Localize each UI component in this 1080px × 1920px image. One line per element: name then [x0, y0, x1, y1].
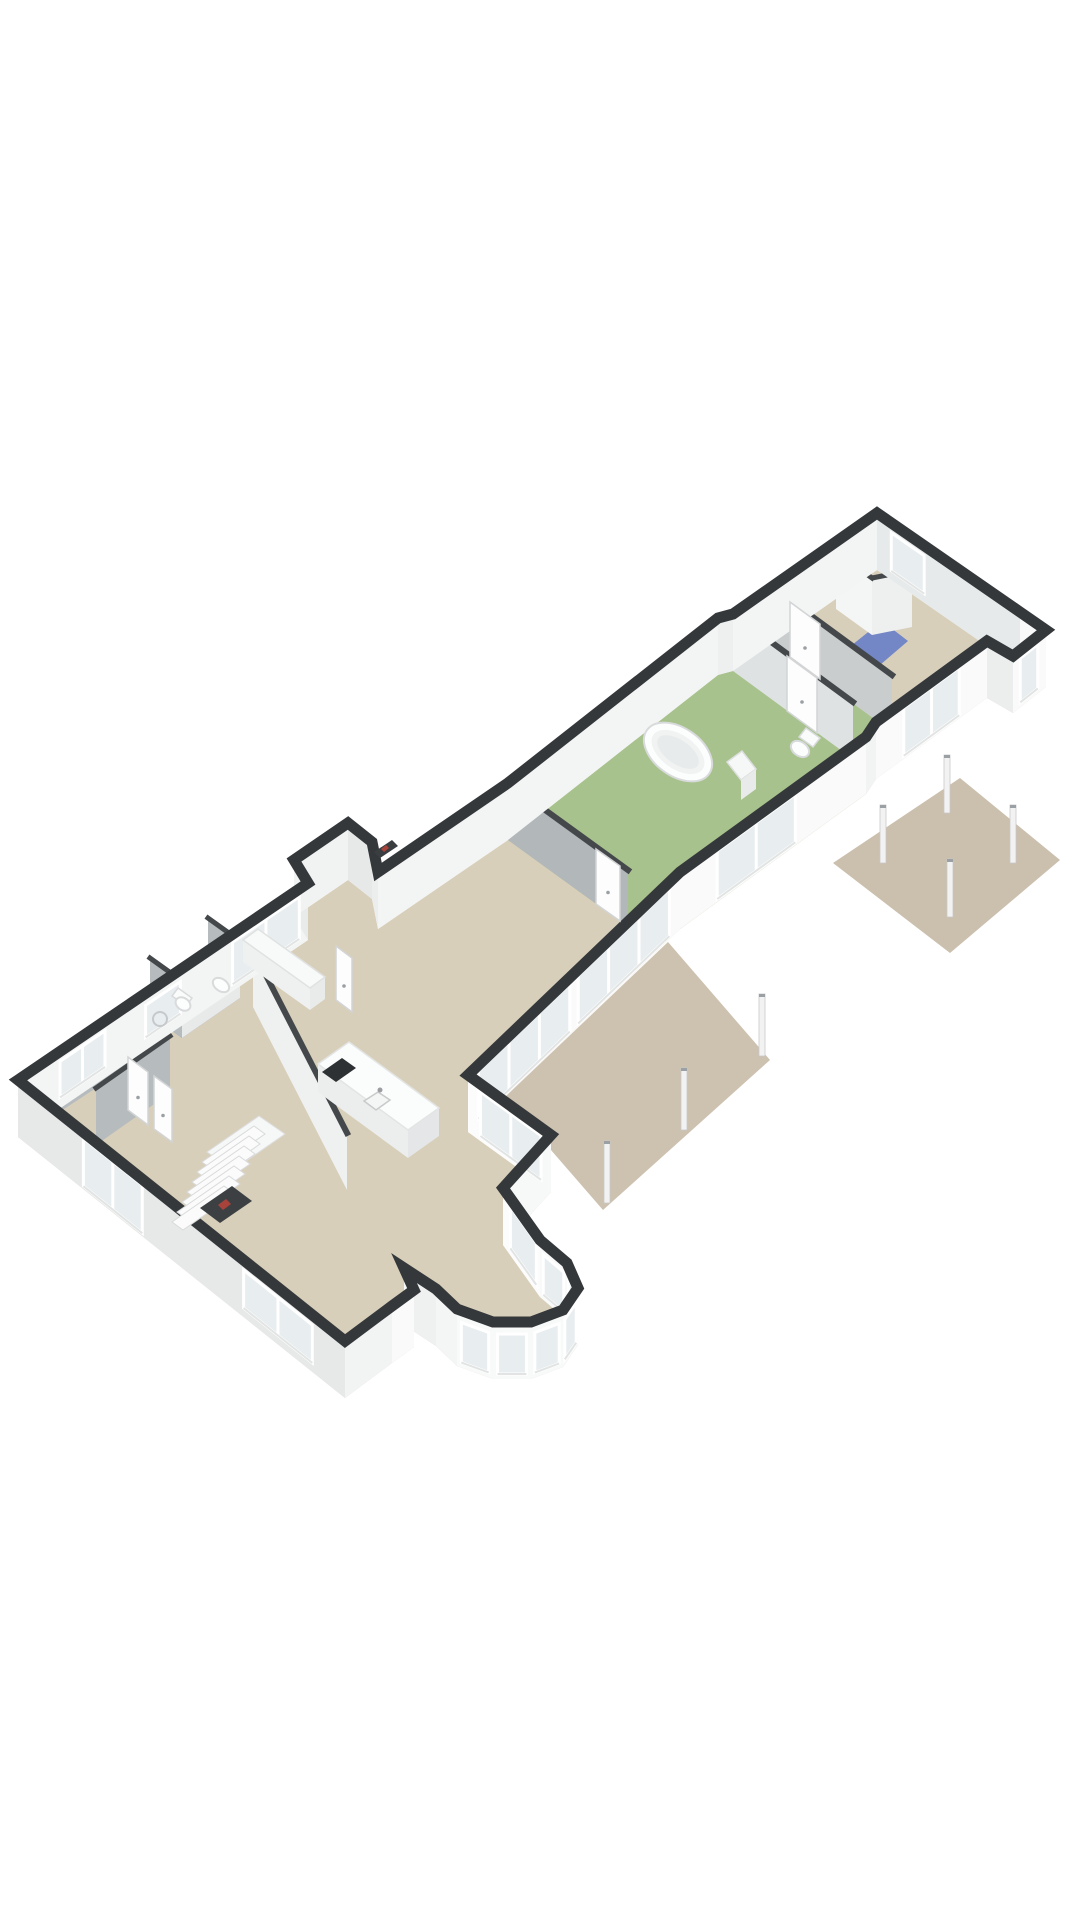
- door-hall-bedroom-handle: [803, 646, 807, 650]
- window-bay-5: [498, 1334, 527, 1374]
- window-bay-6: [461, 1323, 488, 1373]
- patio-middle-post-1: [759, 994, 765, 1056]
- door-corridor-bath-handle: [606, 891, 610, 895]
- patio-right-post-cap-4: [947, 859, 953, 862]
- patio-middle-post-3: [604, 1141, 610, 1203]
- door-hallway-living: [336, 946, 352, 1012]
- floor-plan-page: [0, 0, 1080, 1920]
- patio-right-post-2: [880, 805, 886, 863]
- patio-middle-post-cap-3: [604, 1141, 610, 1144]
- door-left-1-handle: [136, 1096, 140, 1100]
- patio-right-post-cap-2: [880, 805, 886, 808]
- door-bath-hall-handle: [800, 700, 804, 704]
- patio-middle-post-2: [681, 1068, 687, 1130]
- patio-middle-post-cap-2: [681, 1068, 687, 1071]
- door-hallway-living-handle: [342, 984, 346, 988]
- sink-faucet: [378, 1088, 383, 1093]
- patio-right-post-cap-1: [944, 755, 950, 758]
- patio-right-post-1: [944, 755, 950, 813]
- door-left-2-handle: [161, 1114, 165, 1118]
- patio-middle-post-cap-1: [759, 994, 765, 997]
- patio-right-post-3: [1010, 805, 1016, 863]
- window-bay-5-glass: [498, 1334, 527, 1374]
- window-bay-4: [535, 1323, 559, 1372]
- floor-plan-canvas: [0, 0, 1080, 1920]
- patio-right-post-cap-3: [1010, 805, 1016, 808]
- patio-right-post-4: [947, 859, 953, 917]
